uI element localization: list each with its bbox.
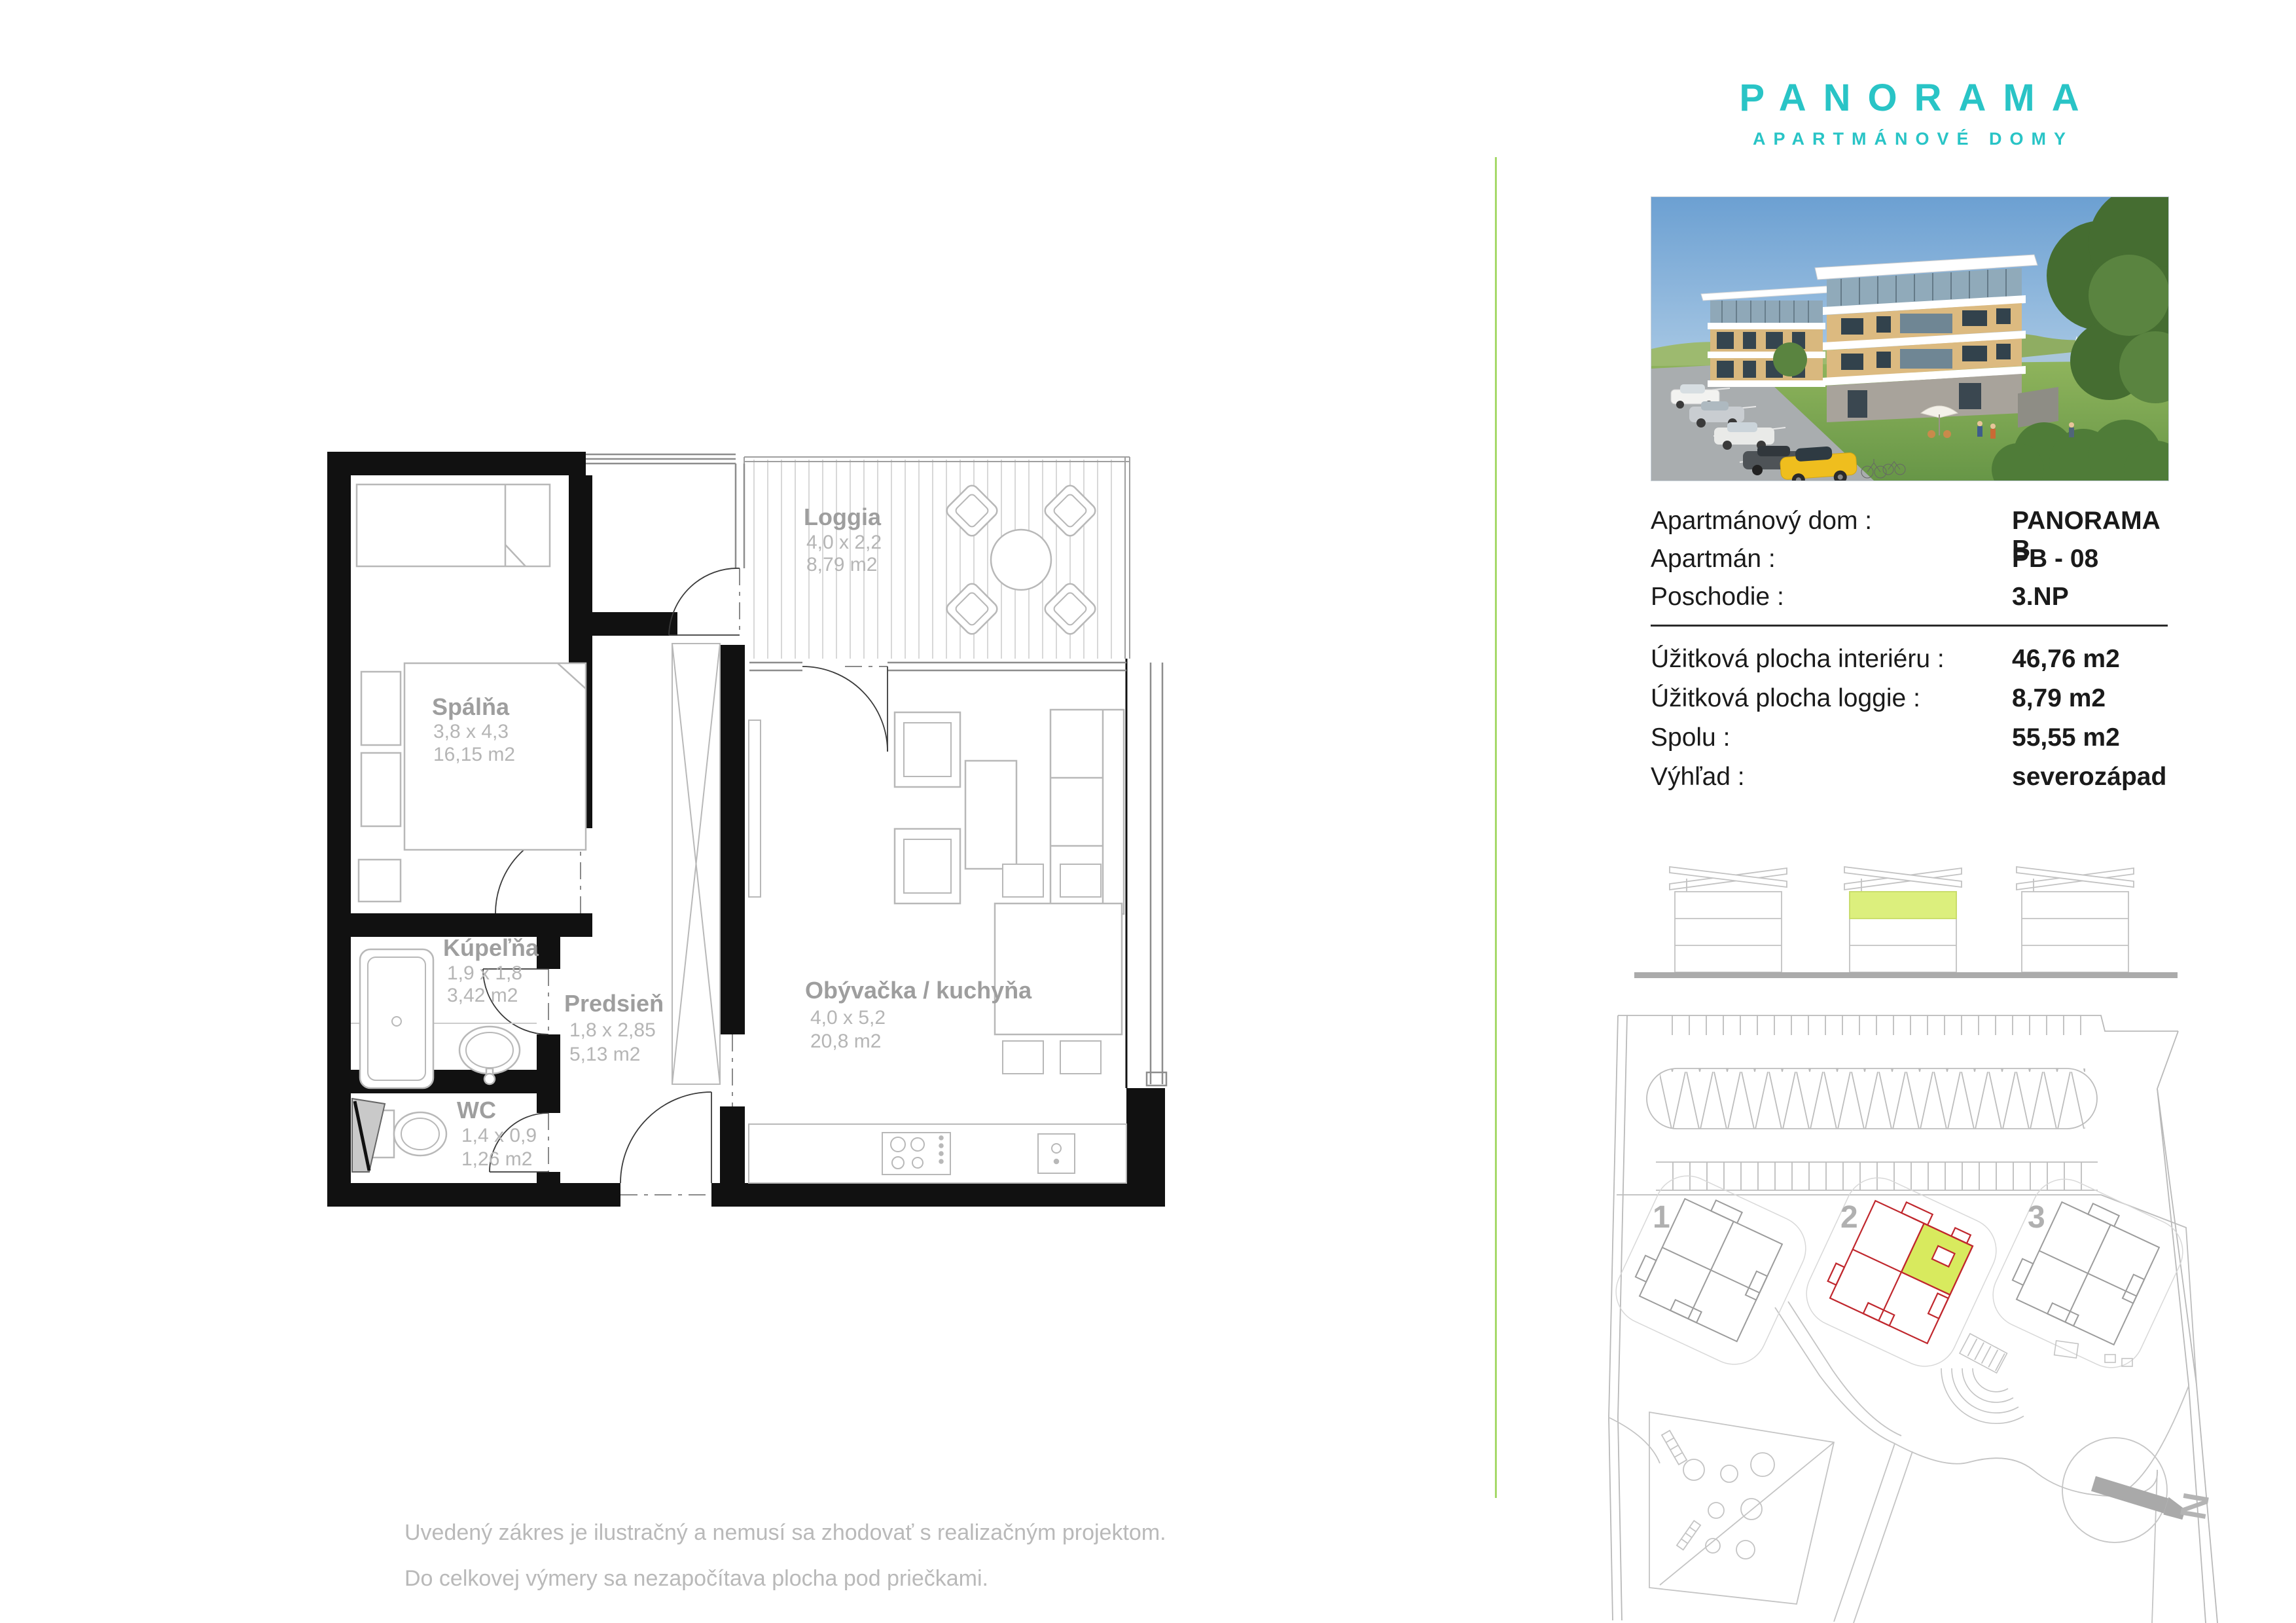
info-value: 3.NP xyxy=(2012,583,2069,611)
svg-text:8,79 m2: 8,79 m2 xyxy=(806,554,877,575)
building-render-photo xyxy=(1651,196,2169,481)
amphitheatre xyxy=(1941,1334,2024,1423)
brand-subtitle: APARTMÁNOVÉ DOMY xyxy=(1651,129,2168,149)
site-plan: 1 2 3 xyxy=(1604,1012,2296,1623)
vertical-divider xyxy=(1495,157,1497,1498)
disclaimer-line2: Do celkovej výmery sa nezapočítava ploch… xyxy=(404,1556,1166,1601)
room-label-obyvacka: Obývačka / kuchyňa xyxy=(805,977,1032,1004)
svg-text:3,42 m2: 3,42 m2 xyxy=(447,985,518,1006)
svg-text:5,13 m2: 5,13 m2 xyxy=(569,1044,640,1065)
brochure-page: Loggia 4,0 x 2,2 8,79 m2 Spálňa 3,8 x 4,… xyxy=(0,0,2296,1623)
info-label: Poschodie : xyxy=(1651,583,1784,611)
info-value: PB - 08 xyxy=(2012,545,2098,574)
info-row: Výhľad : severozápad xyxy=(1651,759,2182,798)
info-value: 8,79 m2 xyxy=(2012,684,2106,713)
ground-line xyxy=(1634,972,2178,978)
highlighted-floor xyxy=(1850,892,1956,919)
svg-text:3,8 x 4,3: 3,8 x 4,3 xyxy=(433,721,509,742)
disclaimer-line1: Uvedený zákres je ilustračný a nemusí sa… xyxy=(404,1510,1166,1556)
info-row: Spolu : 55,55 m2 xyxy=(1651,720,2182,759)
small-tree xyxy=(1773,342,1807,376)
svg-text:20,8 m2: 20,8 m2 xyxy=(810,1030,881,1052)
building-left-wing xyxy=(1701,286,1829,387)
room-label-predsien: Predsieň xyxy=(564,990,664,1017)
svg-text:1,9 x 1,8: 1,9 x 1,8 xyxy=(447,962,522,984)
info-row: Apartmán : PB - 08 xyxy=(1651,541,2182,579)
info-value: severozápad xyxy=(2012,763,2166,792)
apartment-info-table: Apartmánový dom : PANORAMA B Apartmán : … xyxy=(1651,503,2182,798)
info-row: Úžitková plocha interiéru : 46,76 m2 xyxy=(1651,641,2182,680)
svg-text:16,15 m2: 16,15 m2 xyxy=(433,744,515,765)
svg-text:1,4 x 0,9: 1,4 x 0,9 xyxy=(461,1125,537,1146)
svg-text:4,0 x 2,2: 4,0 x 2,2 xyxy=(806,532,882,553)
building-render-scene xyxy=(1651,197,2168,481)
info-row: Apartmánový dom : PANORAMA B xyxy=(1651,503,2182,541)
info-label: Úžitková plocha interiéru : xyxy=(1651,645,1945,674)
info-row: Poschodie : 3.NP xyxy=(1651,579,2182,617)
svg-text:1,26 m2: 1,26 m2 xyxy=(461,1148,532,1170)
info-value: 46,76 m2 xyxy=(2012,645,2120,674)
brand-logo: PANORAMA APARTMÁNOVÉ DOMY xyxy=(1651,76,2168,149)
site-building-label-1: 1 xyxy=(1653,1200,1670,1235)
info-row: Úžitková plocha loggie : 8,79 m2 xyxy=(1651,680,2182,720)
svg-text:1,8 x 2,85: 1,8 x 2,85 xyxy=(569,1019,656,1041)
info-label: Apartmán : xyxy=(1651,545,1776,574)
room-label-loggia: Loggia xyxy=(804,503,882,530)
info-label: Úžitková plocha loggie : xyxy=(1651,684,1920,713)
info-label: Výhľad : xyxy=(1651,763,1745,792)
table-separator xyxy=(1651,625,2168,627)
floor-plan: Loggia 4,0 x 2,2 8,79 m2 Spálňa 3,8 x 4,… xyxy=(327,445,1172,1218)
svg-text:4,0 x 5,2: 4,0 x 5,2 xyxy=(810,1007,886,1029)
site-building-label-3: 3 xyxy=(2028,1200,2045,1235)
room-label-spalna: Spálňa xyxy=(432,693,510,720)
floor-elevation-diagram xyxy=(1634,866,2178,980)
room-label-wc: WC xyxy=(457,1097,496,1123)
room-label-kupelna: Kúpeľňa xyxy=(443,934,539,961)
site-building-label-2: 2 xyxy=(1840,1200,1858,1235)
info-label: Apartmánový dom : xyxy=(1651,507,1872,536)
disclaimer: Uvedený zákres je ilustračný a nemusí sa… xyxy=(404,1510,1166,1601)
info-value: 55,55 m2 xyxy=(2012,723,2120,752)
brand-title: PANORAMA xyxy=(1651,76,2168,120)
info-label: Spolu : xyxy=(1651,723,1730,752)
parking-area xyxy=(1617,1015,2197,1385)
playground xyxy=(1649,1412,1834,1604)
